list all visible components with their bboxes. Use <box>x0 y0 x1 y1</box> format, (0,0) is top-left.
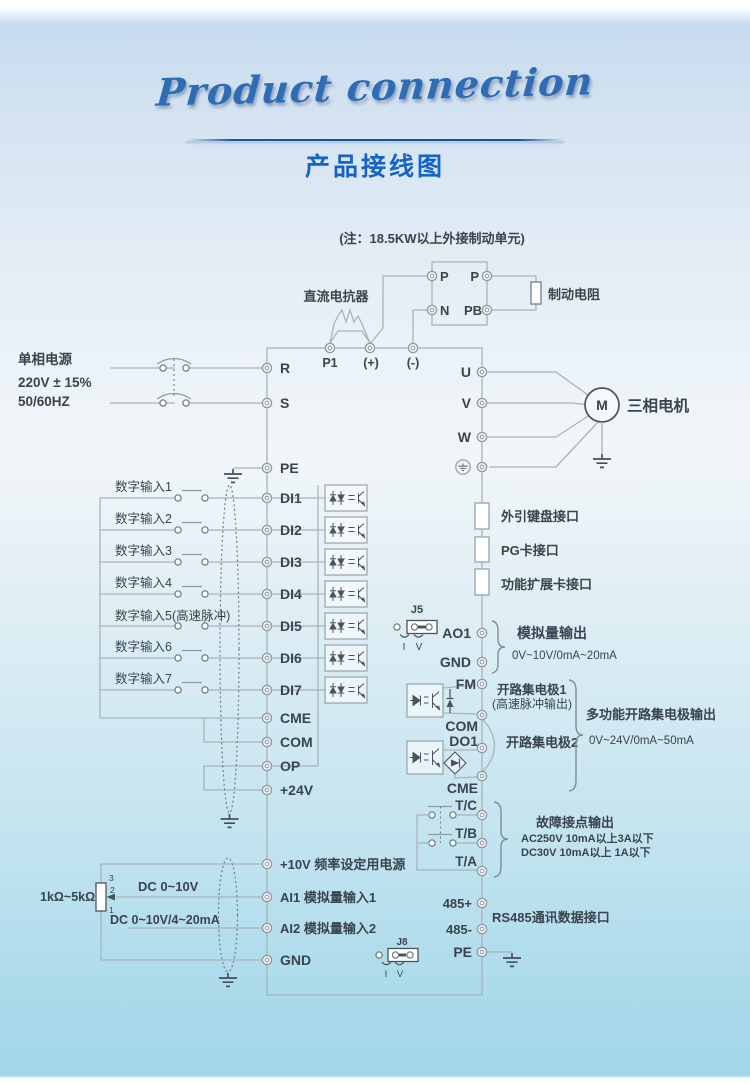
label-s: S <box>280 395 289 411</box>
label-ta: T/A <box>455 854 477 869</box>
label-gnd-left: GND <box>280 952 311 968</box>
terminal-s <box>262 398 271 407</box>
terminal-n <box>427 305 436 314</box>
terminal-p1 <box>325 343 334 352</box>
power-input-section: 单相电源 220V ± 15% 50/60HZ R S <box>18 351 290 411</box>
di2-switch-a <box>175 527 181 533</box>
label-braking-resistor: 制动电阻 <box>548 287 600 302</box>
terminal-p-right <box>482 271 491 280</box>
switch-s-right <box>183 400 189 406</box>
pe-circle-ground-icon <box>458 464 467 471</box>
label-pg-card: PG卡接口 <box>501 543 559 558</box>
label-pe-right: PE <box>453 944 472 960</box>
label-24v: +24V <box>280 782 314 798</box>
dc-reactor-coil <box>330 310 370 343</box>
motor-section: U V W M 三相电机 <box>456 364 690 474</box>
label-tb: T/B <box>455 826 477 841</box>
analog-input-section: 3 2 1 1kΩ~5kΩ DC 0~10V DC 0~10V/4~20mA +… <box>40 857 405 986</box>
terminal-r <box>262 363 271 372</box>
di4-label: 数字输入4 <box>115 575 172 590</box>
braking-unit-section: P P N PB 制动电阻 直流电抗器 <box>303 262 600 344</box>
j5-pin-mid <box>411 624 417 630</box>
di4-switch-a <box>175 591 181 597</box>
di4-switch-b <box>202 591 208 597</box>
terminal-u <box>477 367 486 376</box>
label-10v: +10V 频率设定用电源 <box>280 857 405 872</box>
terminal-do1 <box>477 743 486 752</box>
di6-switch-a <box>175 655 181 661</box>
terminal-di1 <box>262 493 271 502</box>
terminal-ground-right <box>477 462 486 471</box>
terminal-v <box>477 398 486 407</box>
di2-terminal-label: DI2 <box>280 522 302 538</box>
motor-ground-icon <box>593 454 611 467</box>
di2-switch-b <box>202 527 208 533</box>
pe-ground-icon <box>224 469 242 482</box>
do1-optocoupler-icon <box>407 741 443 774</box>
analog-shield-ground-icon <box>219 973 237 986</box>
j8-pin-mid <box>392 952 398 958</box>
rs485-title: RS485通讯数据接口 <box>492 910 610 925</box>
oc2-label: 开路集电极2 <box>506 735 578 750</box>
terminal-tb <box>477 838 486 847</box>
terminal-gnd-left <box>262 955 271 964</box>
label-ai1: AI1 模拟量输入1 <box>280 890 376 905</box>
terminal-pb <box>482 305 491 314</box>
relay-contact-1a <box>429 812 435 818</box>
braking-resistor <box>531 282 541 304</box>
label-com-right: COM <box>445 718 478 734</box>
relay-section: T/C T/B T/A 故障接点输出 AC250V 10mA以上3A以下 DC3… <box>417 798 654 877</box>
motor-m: M <box>596 397 608 413</box>
di7-optocoupler-icon <box>325 677 367 703</box>
motor-wires <box>487 372 600 467</box>
terminal-485p <box>477 898 486 907</box>
j8-pin-right <box>407 952 413 958</box>
di1-optocoupler-icon <box>325 485 367 511</box>
label-ao-gnd: GND <box>440 654 471 670</box>
minus-to-n-wire <box>413 310 427 343</box>
oc-title: 多功能开路集电极输出 <box>586 707 716 722</box>
power-wires <box>110 368 262 403</box>
j5-pin-left <box>394 624 400 630</box>
di-shield-ground-icon <box>221 814 239 827</box>
terminal-plus <box>365 343 374 352</box>
j5-label: J5 <box>411 604 423 616</box>
di5-switch-a <box>175 623 181 629</box>
di4-optocoupler-icon <box>325 581 367 607</box>
label-p-right: P <box>470 269 479 284</box>
terminal-24v <box>262 785 271 794</box>
j5-arcs <box>400 635 423 638</box>
terminal-fm <box>477 679 486 688</box>
terminal-com-right <box>477 710 486 719</box>
di5-switch-b <box>202 623 208 629</box>
label-n: N <box>440 303 449 318</box>
terminal-di3 <box>262 557 271 566</box>
fm-optocoupler-icon <box>407 684 443 717</box>
label-w: W <box>458 429 472 445</box>
di5-optocoupler-icon <box>325 613 367 639</box>
op-24v-link <box>204 766 262 790</box>
di7-switch-b <box>202 687 208 693</box>
di6-label: 数字输入6 <box>115 639 172 654</box>
di7-label: 数字输入7 <box>115 671 172 686</box>
label-cme-left: CME <box>280 710 311 726</box>
di7-terminal-label: DI7 <box>280 682 302 698</box>
pe-right-ground-icon <box>503 953 521 966</box>
label-u: U <box>461 364 471 380</box>
switch-r-left <box>160 365 166 371</box>
label-tc: T/C <box>455 798 477 813</box>
label-r: R <box>280 360 290 376</box>
open-collector-section: FM COM DO1 CME 开路集电极1 (高速脉冲输出) 开路集电极2 多功… <box>407 676 716 796</box>
terminal-ta <box>477 866 486 875</box>
terminal-10v <box>262 859 271 868</box>
oc1-label: 开路集电极1 <box>497 682 567 697</box>
relay-brace <box>494 802 508 877</box>
di4-terminal-label: DI4 <box>280 586 302 602</box>
di1-label: 数字输入1 <box>115 479 172 494</box>
di1-switch-b <box>202 495 208 501</box>
terminal-pe-left <box>262 463 271 472</box>
label-cme-right: CME <box>447 780 478 796</box>
j8-label: J8 <box>396 937 408 948</box>
di-shield <box>220 485 239 813</box>
terminal-di5 <box>262 621 271 630</box>
label-pb: PB <box>464 303 482 318</box>
label-do1: DO1 <box>449 733 478 749</box>
j8-pin-left <box>376 952 382 958</box>
di1-terminal-label: DI1 <box>280 490 302 506</box>
label-p1: P1 <box>322 356 337 370</box>
di3-switch-b <box>202 559 208 565</box>
keypad-port <box>475 503 489 529</box>
terminal-op <box>262 761 271 770</box>
relay-levers <box>428 807 452 835</box>
digital-input-section: 数字输入1 DI1 数字输入2 DI2 数字输入3 DI3 <box>100 479 367 827</box>
di2-label: 数字输入2 <box>115 511 172 526</box>
j8-pin-i-label: I <box>385 969 388 980</box>
potentiometer <box>96 883 106 911</box>
label-ao1: AO1 <box>442 625 471 641</box>
ao-brace <box>492 621 505 673</box>
interface-section: 外引键盘接口 PG卡接口 功能扩展卡接口 <box>475 503 592 595</box>
terminal-di7 <box>262 685 271 694</box>
di1-switch-a <box>175 495 181 501</box>
analog-shield <box>219 858 238 972</box>
di3-optocoupler-icon <box>325 549 367 575</box>
di2-optocoupler-icon <box>325 517 367 543</box>
terminal-minus <box>408 343 417 352</box>
di5-terminal-label: DI5 <box>280 618 302 634</box>
oc1-sub-label: (高速脉冲输出) <box>492 696 572 711</box>
terminal-di4 <box>262 589 271 598</box>
terminal-di6 <box>262 653 271 662</box>
di3-switch-a <box>175 559 181 565</box>
label-op: OP <box>280 758 300 774</box>
j5-pin-i-label: I <box>403 642 406 653</box>
relay-spec-dc: DC30V 10mA以上 1A以下 <box>521 845 651 859</box>
di3-label: 数字输入3 <box>115 543 172 558</box>
expansion-card-port <box>475 569 489 595</box>
di6-terminal-label: DI6 <box>280 650 302 666</box>
terminal-tc <box>477 810 486 819</box>
terminal-di2 <box>262 525 271 534</box>
motor-label: 三相电机 <box>627 396 690 415</box>
terminal-ao1 <box>477 628 486 637</box>
j5-pin-v-label: V <box>416 642 423 653</box>
label-485n: 485- <box>446 922 472 937</box>
relay-title: 故障接点输出 <box>536 815 614 830</box>
ao-title: 模拟量输出 <box>517 625 587 641</box>
pot-pin2: 2 <box>110 885 115 895</box>
oc-range: 0V~24V/0mA~50mA <box>589 735 694 747</box>
j8-arcs <box>382 962 404 965</box>
terminal-p-left <box>427 271 436 280</box>
label-keypad-port: 外引键盘接口 <box>500 509 579 524</box>
fm-diode-icon <box>447 700 454 708</box>
pot-label: 1kΩ~5kΩ <box>40 890 95 904</box>
com-link <box>204 718 262 742</box>
pg-card-port <box>475 537 489 562</box>
power-line3: 50/60HZ <box>18 394 70 409</box>
braking-note: (注：18.5KW以上外接制动单元) <box>339 231 525 246</box>
pe-left-section: PE <box>224 460 299 482</box>
terminal-ai1 <box>262 892 271 901</box>
label-minus: (-) <box>407 356 420 370</box>
pot-pin3: 3 <box>109 873 114 883</box>
switch-r-right <box>183 365 189 371</box>
ai2-signal-label: DC 0~10V/4~20mA <box>110 913 220 927</box>
wiring-diagram: (注：18.5KW以上外接制动单元) P P N PB 制动电阻 直流电抗器 <box>0 0 750 1084</box>
label-485p: 485+ <box>443 896 473 911</box>
di7-switch-a <box>175 687 181 693</box>
terminal-ao-gnd <box>477 657 486 666</box>
relay-contact-2a <box>429 840 435 846</box>
label-plus: (+) <box>363 356 379 370</box>
ao-range: 0V~10V/0mA~20mA <box>512 650 617 662</box>
ai1-signal-label: DC 0~10V <box>138 879 199 894</box>
dc-reactor-bypass <box>330 331 370 343</box>
di3-terminal-label: DI3 <box>280 554 302 570</box>
label-v: V <box>462 395 472 411</box>
pe-circle <box>456 460 470 474</box>
relay-spec-ac: AC250V 10mA以上3A以下 <box>521 831 654 845</box>
label-fm: FM <box>456 676 476 692</box>
analog-output-section: J5 I V AO1 GND 模拟量输出 0V~10V/0mA~20mA <box>394 604 617 673</box>
terminal-cme-right <box>477 771 486 780</box>
label-expansion-card: 功能扩展卡接口 <box>501 577 592 592</box>
power-line2: 220V ± 15% <box>18 375 91 390</box>
di5-label: 数字输入5(高速脉冲) <box>115 608 230 623</box>
di6-optocoupler-icon <box>325 645 367 671</box>
label-dc-reactor: 直流电抗器 <box>303 289 369 304</box>
switch-s-left <box>160 400 166 406</box>
label-com-left: COM <box>280 734 313 750</box>
di6-switch-b <box>202 655 208 661</box>
power-line1: 单相电源 <box>18 351 72 367</box>
terminal-ai2 <box>262 923 271 932</box>
label-ai2: AI2 模拟量输入2 <box>280 921 376 936</box>
page: Product connection 产品接线图 <box>0 0 750 1084</box>
terminal-com-left <box>262 737 271 746</box>
terminal-w <box>477 432 486 441</box>
label-pe-left: PE <box>280 460 299 476</box>
resistor-wires <box>491 276 536 310</box>
j8-pin-v-label: V <box>397 969 404 980</box>
j5-pin-right <box>426 624 432 630</box>
label-p-left: P <box>440 269 449 284</box>
terminal-485n <box>477 924 486 933</box>
comm-section: 485+ 485- PE RS485通讯数据接口 J8 I V <box>376 896 610 980</box>
terminal-cme-left <box>262 713 271 722</box>
terminal-pe-right <box>477 947 486 956</box>
